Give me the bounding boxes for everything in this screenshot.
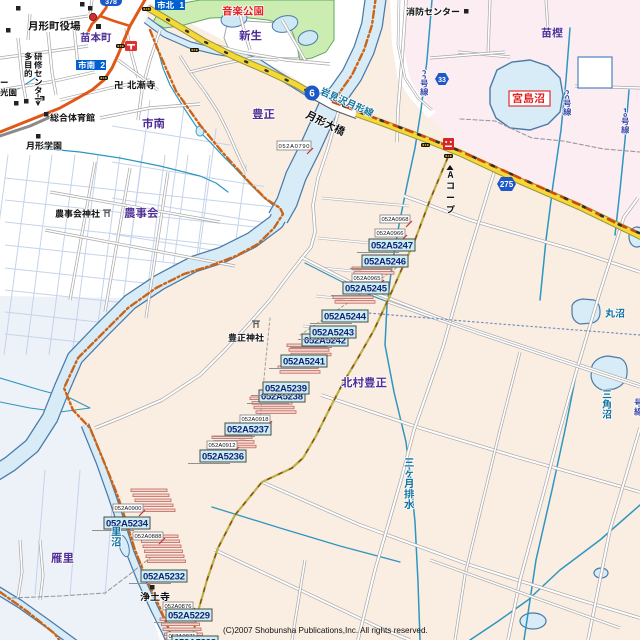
- svg-text:(C)2007 Shobunsha Publication: (C)2007 Shobunsha Publications,Inc. All …: [223, 626, 428, 635]
- svg-text:1: 1: [179, 0, 184, 10]
- svg-text:052A5245: 052A5245: [345, 283, 388, 294]
- svg-text:052A0790: 052A0790: [279, 144, 310, 150]
- svg-text:052A5239: 052A5239: [265, 383, 307, 394]
- svg-text:052A0888: 052A0888: [135, 534, 162, 540]
- svg-text:378: 378: [105, 0, 117, 6]
- svg-text:052A5243: 052A5243: [312, 327, 354, 338]
- svg-text:052A5236: 052A5236: [202, 451, 244, 462]
- svg-text:052A5241: 052A5241: [283, 356, 326, 367]
- svg-text:052A5244: 052A5244: [324, 311, 367, 322]
- svg-text:052A0912: 052A0912: [209, 443, 236, 449]
- svg-text:052A5247: 052A5247: [371, 240, 413, 251]
- svg-text:052A5246: 052A5246: [364, 256, 406, 267]
- svg-text:2: 2: [100, 60, 105, 70]
- svg-text:052A5229: 052A5229: [168, 610, 210, 621]
- svg-text:052A0918: 052A0918: [242, 417, 269, 423]
- svg-text:052A5237: 052A5237: [227, 424, 269, 435]
- svg-text:6: 6: [309, 89, 315, 100]
- svg-text:052A5232: 052A5232: [143, 571, 185, 582]
- svg-text:052A0968: 052A0968: [382, 217, 409, 223]
- svg-text:052A0900: 052A0900: [115, 506, 142, 512]
- svg-text:33: 33: [438, 77, 446, 84]
- svg-text:052A0966: 052A0966: [377, 231, 404, 237]
- svg-text:275: 275: [500, 180, 514, 189]
- svg-text:052A0965: 052A0965: [354, 276, 381, 282]
